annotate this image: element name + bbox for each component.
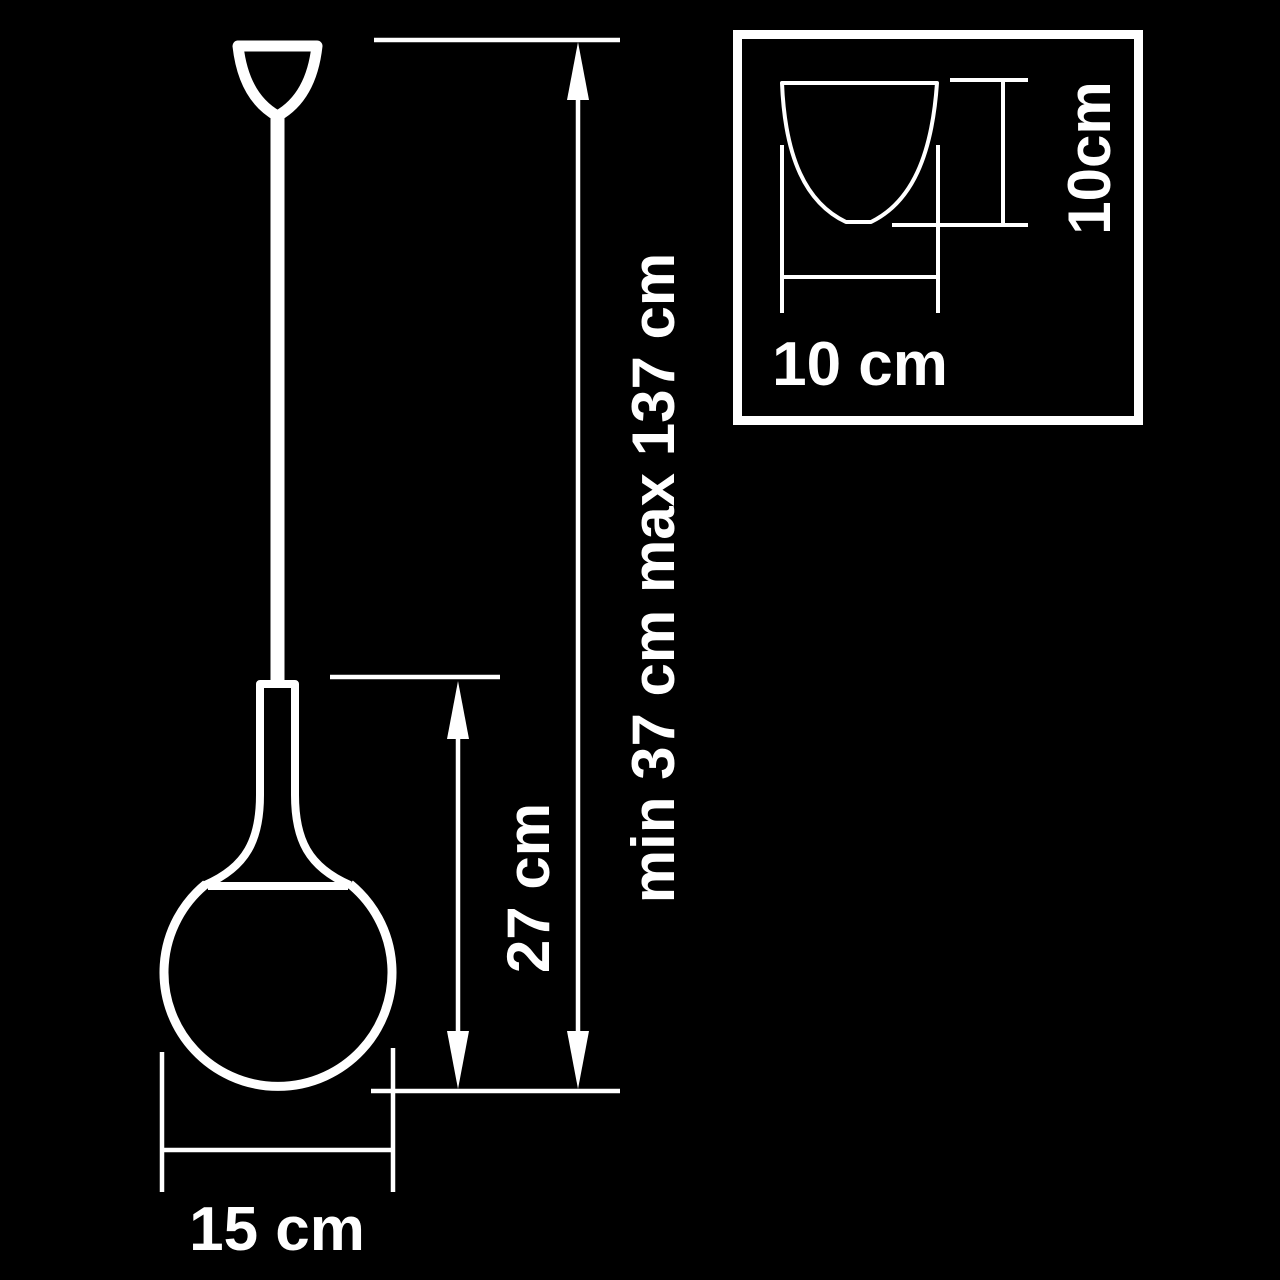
- shade-diameter-dimension: 15 cm: [162, 1048, 393, 1264]
- arrow-down-icon: [447, 1031, 469, 1089]
- inset-height-label: 10cm: [1056, 81, 1123, 234]
- ceiling-canopy-outline: [238, 46, 317, 116]
- fixture-height-dimension: 27 cm: [330, 677, 562, 1089]
- glass-globe-outline: [164, 884, 392, 1086]
- canopy-detail-inset: 10 cm 10cm: [738, 35, 1139, 421]
- shade-diameter-label: 15 cm: [189, 1195, 365, 1264]
- overall-height-label: min 37 cm max 137 cm: [620, 253, 687, 903]
- diagram-canvas: min 37 cm max 137 cm 27 cm 15 cm: [0, 0, 1280, 1280]
- inset-canopy-outline: [782, 83, 937, 222]
- arrow-up-icon: [567, 42, 589, 100]
- pendant-lamp-dimension-diagram: min 37 cm max 137 cm 27 cm 15 cm: [0, 0, 1280, 1280]
- lamp-neck-outline: [205, 684, 350, 885]
- pendant-lamp-drawing: [164, 46, 392, 1086]
- fixture-height-label: 27 cm: [495, 803, 562, 973]
- arrow-up-icon: [447, 681, 469, 739]
- inset-width-label: 10 cm: [772, 330, 948, 399]
- arrow-down-icon: [567, 1031, 589, 1089]
